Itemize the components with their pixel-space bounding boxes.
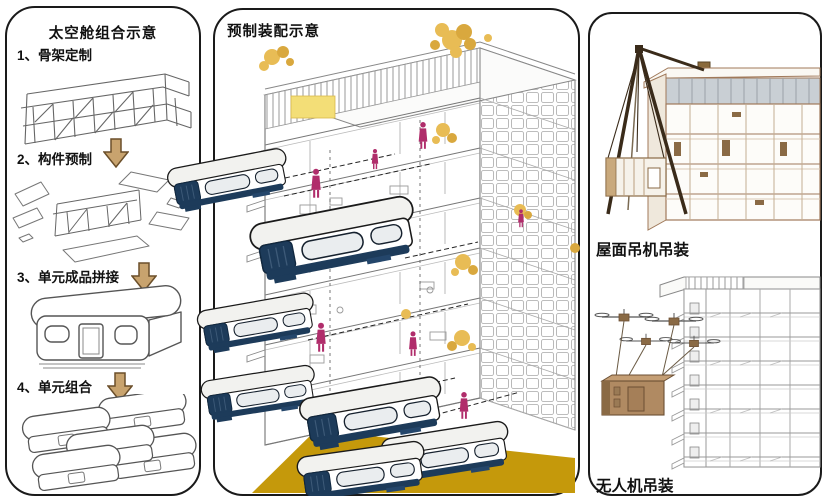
left-panel: 太空舱组合示意 1、骨架定制 2、构件预制 — [5, 6, 201, 496]
right-panel: 屋面吊机吊装 — [588, 12, 822, 496]
step-2-exploded-illustration — [11, 164, 199, 264]
tan-building — [644, 68, 820, 230]
roof-crane-illustration — [590, 22, 822, 236]
step-4-cluster-illustration — [13, 394, 197, 496]
roof-crane-label: 屋面吊机吊装 — [596, 238, 689, 260]
middle-panel-title: 预制装配示意 — [227, 20, 320, 41]
infographic-canvas: 太空舱组合示意 1、骨架定制 2、构件预制 — [0, 0, 829, 498]
drone-hoist-illustration — [590, 269, 822, 471]
hanging-module — [606, 158, 666, 196]
left-panel-title: 太空舱组合示意 — [7, 22, 199, 43]
middle-panel: 预制装配示意 — [213, 8, 580, 496]
step-3-capsule-illustration — [15, 282, 197, 372]
drone-hoist-label: 无人机吊装 — [596, 474, 674, 496]
drone-cargo-module — [602, 375, 674, 415]
white-tower — [660, 277, 820, 469]
step-4-label: 4、单元组合 — [17, 376, 92, 396]
